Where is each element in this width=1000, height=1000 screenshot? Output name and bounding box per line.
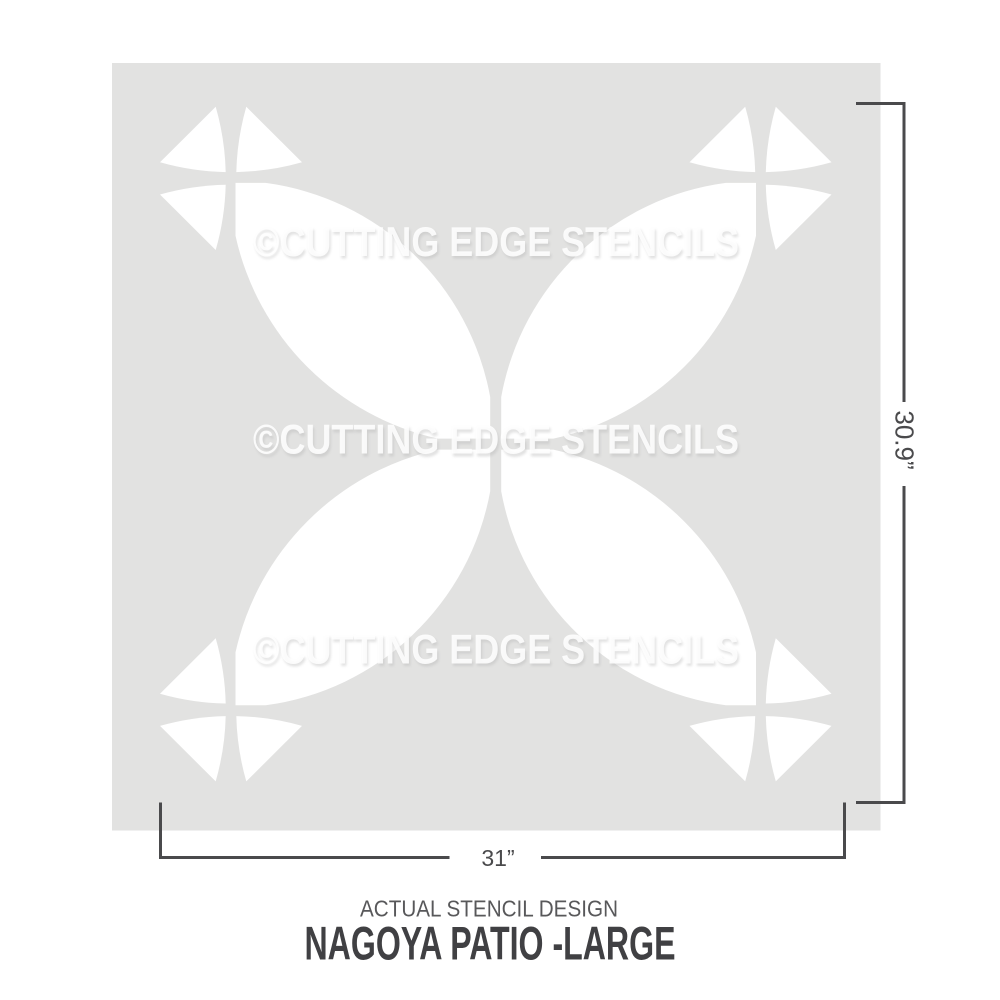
svg-text:©CUTTING EDGE STENCILS: ©CUTTING EDGE STENCILS [253,416,739,463]
svg-text:30.9”: 30.9” [890,410,920,469]
svg-text:©CUTTING EDGE STENCILS: ©CUTTING EDGE STENCILS [253,218,739,265]
svg-text:31”: 31” [481,845,514,871]
svg-text:NAGOYA PATIO -LARGE: NAGOYA PATIO -LARGE [305,917,676,970]
svg-text:©CUTTING EDGE STENCILS: ©CUTTING EDGE STENCILS [253,626,739,673]
